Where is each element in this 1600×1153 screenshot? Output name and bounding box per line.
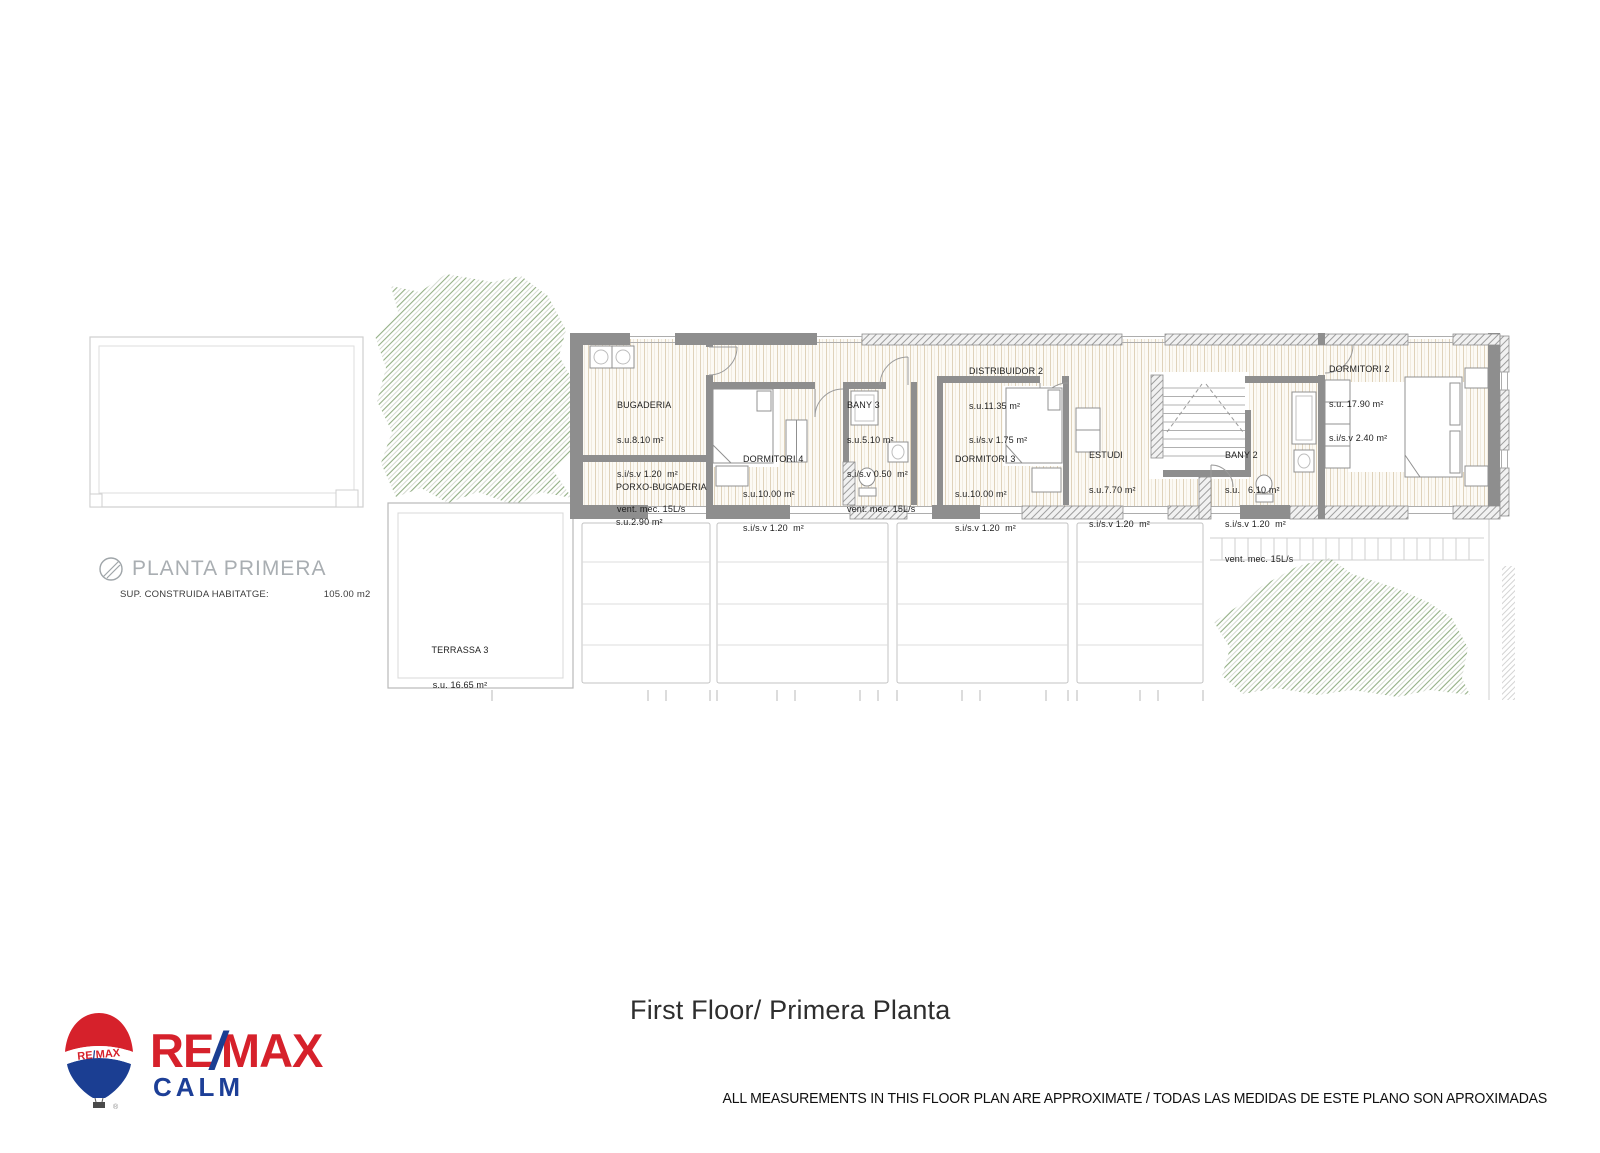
plan-name: PLANTA PRIMERA (132, 557, 327, 581)
tree-canopy-icon (375, 274, 578, 506)
built-area-value: 105.00 m2 (324, 589, 371, 600)
remax-wordmark: RE/MAX (150, 1024, 322, 1077)
svg-text:®: ® (113, 1103, 119, 1110)
room-label-estudi: ESTUDI s.u.7.70 m² s.i/s.v 1.20 m² (1089, 427, 1150, 554)
room-label-bany-2: BANY 2 s.u. 6.10 m² s.i/s.v 1.20 m² vent… (1225, 427, 1293, 588)
section-marker-icon (98, 556, 124, 582)
built-area-label: SUP. CONSTRUIDA HABITATGE: (120, 589, 269, 600)
room-label-dormitori-3: DORMITORI 3 s.u.10.00 m² s.i/s.v 1.20 m² (955, 431, 1016, 558)
room-label-dormitori-4: DORMITORI 4 s.u.10.00 m² s.i/s.v 1.20 m² (743, 431, 804, 558)
page-title: First Floor/ Primera Planta (630, 995, 950, 1026)
room-label-porxo-bugaderia: PORXO-BUGADERIA s.u.2.90 m² (616, 459, 707, 551)
remax-balloon-icon: RE/MAX ® (59, 1006, 139, 1110)
remax-logo: RE/MAX ® RE/MAX CALM (45, 1000, 365, 1120)
room-label-dormitori-2: DORMITORI 2 s.u. 17.90 m² s.i/s.v 2.40 m… (1329, 341, 1390, 468)
room-label-terrassa-3: TERRASSA 3 s.u. 16.65 m² (400, 622, 520, 714)
side-wall-hatch (1502, 566, 1515, 700)
disclaimer-text: ALL MEASUREMENTS IN THIS FLOOR PLAN ARE … (722, 1091, 1547, 1107)
flat-roof-outline (90, 337, 363, 507)
floor-plan-page: BUGADERIA s.u.8.10 m² s.i/s.v 1.20 m² ve… (0, 0, 1600, 1153)
remax-office-name: CALM (153, 1072, 244, 1103)
plan-title-block: PLANTA PRIMERA SUP. CONSTRUIDA HABITATGE… (98, 556, 418, 600)
room-label-bany-3: BANY 3 s.u.5.10 m² s.i/s.v 0.50 m² vent.… (847, 377, 915, 538)
